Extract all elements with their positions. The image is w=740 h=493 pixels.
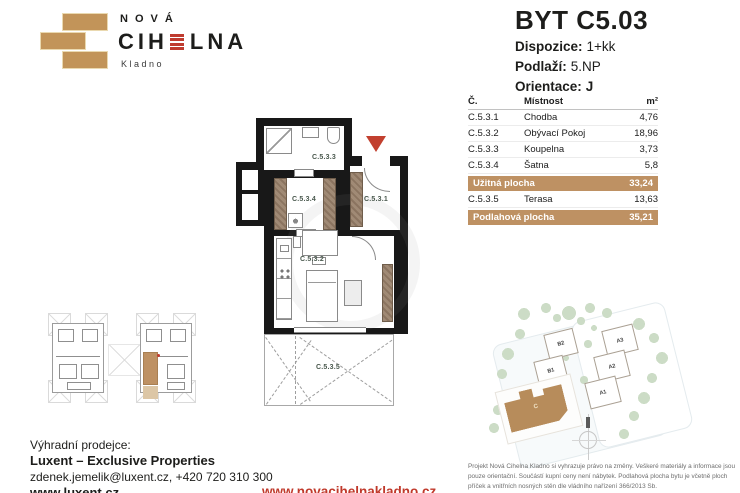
entrance-door-gap [362,156,390,168]
unit-outline [81,364,99,379]
wardrobe [274,178,287,230]
brick-icon [62,51,108,69]
entrance-arrow-icon [366,136,386,152]
unit-outline [170,329,186,342]
legal-disclaimer: Projekt Nová Cihelna Kladno si vyhrazuje… [468,462,735,492]
unit-outline [167,382,185,390]
brand-name-pre: CIH [118,29,168,55]
building-outline [52,323,104,393]
wardrobe [382,264,393,322]
brand-name-post: LNA [190,29,247,55]
wardrobe [350,172,363,227]
compass-icon [572,414,606,460]
side-table [344,280,362,306]
brand-name-top: NOVÁ [120,13,247,25]
brand-city: Kladno [121,59,247,69]
room-label: C.5.3.2 [300,256,324,263]
sink-fixture [302,127,319,138]
shaft-slot [242,170,258,190]
spec-dispozice: Dispozice:1+kk [515,37,615,57]
page-title: BYT C5.03 [515,5,648,36]
site-plan: B2 B1 A3 A2 A1 C [488,302,738,480]
table-row: C.5.3.1 Chodba 4,76 [468,110,658,126]
table-row: C.5.3.4 Šatna 5,8 [468,158,658,174]
room-label: C.5.3.1 [364,196,388,203]
brick-icon [40,32,86,50]
unit-specs: Dispozice:1+kk Podlaží:5.NP Orientace:J [515,37,615,97]
kitchen-sink [280,245,289,252]
washer-fixture [288,213,303,228]
terrace-glass-door [294,327,366,333]
brand-name-main: CIH LNA [118,29,247,55]
seller-name: Luxent – Exclusive Properties [30,453,215,468]
stylized-e-red-bars-icon [170,34,184,50]
highlighted-unit-terrace [143,386,158,399]
table-row: C.5.3.3 Koupelna 3,73 [468,142,658,158]
brick-icon [62,13,108,31]
unit-outline [67,382,91,390]
project-website-link[interactable]: www.novacihelnakladno.cz [262,484,436,493]
seller-contact-link[interactable]: zdenek.jemelik@luxent.cz, +420 720 310 3… [30,470,273,484]
seller-website-link[interactable]: www.luxent.cz [30,485,119,493]
bed-pillow-line [308,282,336,283]
spec-podlazi: Podlaží:5.NP [515,57,615,77]
brand-wordmark: NOVÁ CIH LNA Kladno [118,13,247,69]
bed [306,270,338,322]
unit-outline [58,329,74,342]
wardrobe [323,178,336,230]
floor-plan-brochure-page: NOVÁ CIH LNA Kladno BYT C5.03 Dispozice:… [0,0,740,493]
highlighted-unit [143,352,158,385]
unit-outline [59,364,77,379]
shaft-slot [242,194,258,220]
shower-fixture [266,128,292,154]
chair [293,236,301,248]
sliding-door [294,169,314,177]
room-area-table: Č. Místnost m² C.5.3.1 Chodba 4,76 C.5.3… [468,94,658,226]
corridor-line [56,356,100,357]
room-label: C.5.3.5 [316,364,340,371]
unit-outline [167,364,185,379]
room-label: C.5.3.3 [312,154,336,161]
unit-entry-dot [157,354,160,357]
table-row: C.5.3.5 Terasa 13,63 [468,192,658,208]
apartment-floor-plan: C.5.3.3 C.5.3.4 C.5.3.1 C.5.3.2 C.5.3.5 [230,112,416,412]
toilet-fixture [327,127,340,144]
stove-burners [279,268,291,280]
terrace-dashed-line [295,336,296,404]
table-row: C.5.3.2 Obývací Pokoj 18,96 [468,126,658,142]
floor-overview-plan [28,310,238,420]
room-label: C.5.3.4 [292,196,316,203]
table-header-row: Č. Místnost m² [468,94,658,110]
unit-outline [82,329,98,342]
dining-table [302,230,338,256]
seller-heading: Výhradní prodejce: [30,438,131,452]
usable-area-total-row: Užitná plocha 33,24 [468,176,658,191]
terrace-mark [108,344,141,376]
unit-outline [146,329,162,342]
floor-area-total-row: Podlahová plocha 35,21 [468,210,658,225]
